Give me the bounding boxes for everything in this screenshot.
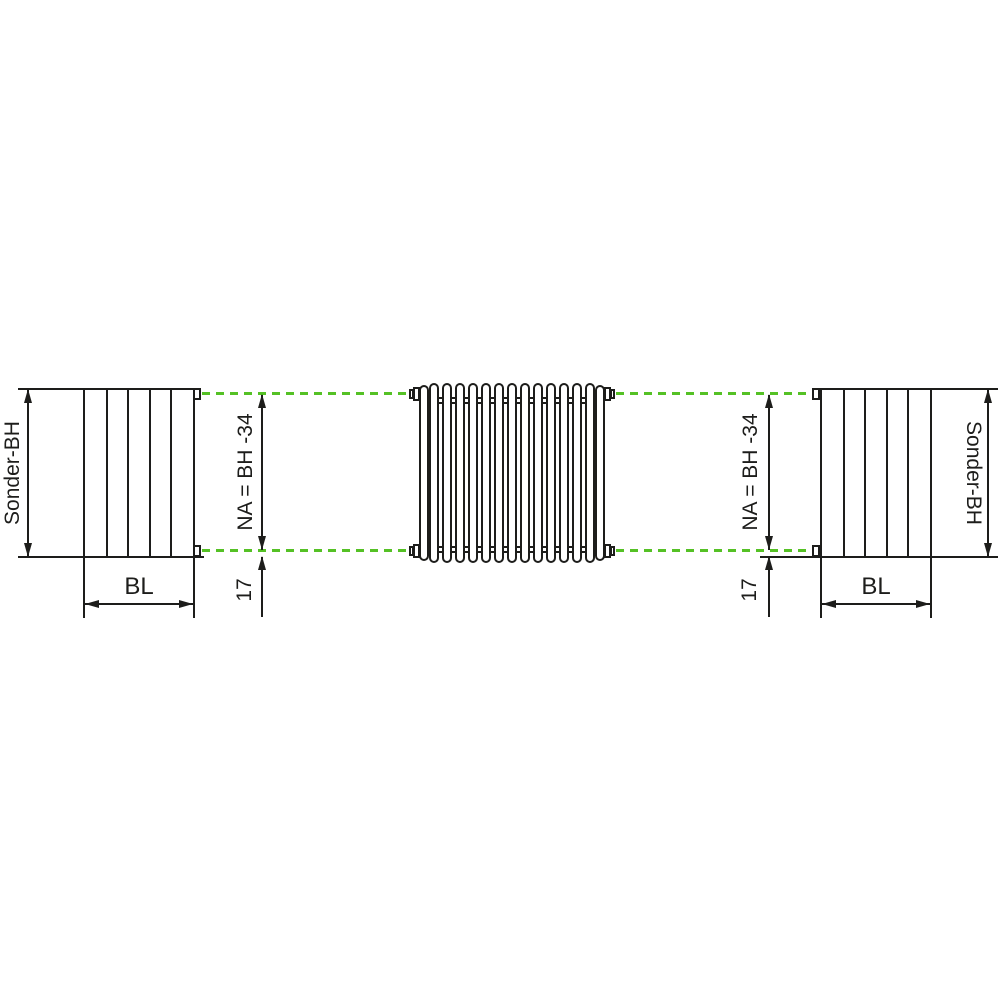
label-bl-left: BL [124,573,153,601]
dimension-arrow [24,389,32,403]
radiator-tube [494,383,504,563]
label-na-left: NA = BH -34 [234,413,258,530]
connection-tab-right-top [812,388,820,400]
pipe-axis-line-bottom-right [616,549,810,552]
dimension-arrow [258,394,266,408]
column-divider-line [843,390,845,556]
connection-nipple-right-top [604,387,611,401]
column-divider-line [149,390,151,556]
dimension-arrow [258,556,266,570]
connection-tab-right-bottom [812,545,820,557]
column-divider-line [886,390,888,556]
label-bl-right: BL [861,573,890,601]
extension-line [820,558,822,618]
column-divider-line [907,390,909,556]
extension-line [193,558,195,618]
pipe-axis-line-top-left [202,392,406,395]
radiator-end-plate-left [419,385,429,561]
label-sonder-bh-right: Sonder-BH [961,421,985,525]
dimension-arrow [85,600,99,608]
radiator-tube [429,383,439,563]
dimension-arrow [179,600,193,608]
radiator-tube [468,383,478,563]
radiator-tube [520,383,530,563]
pipe-axis-line-bottom-left [202,549,406,552]
radiator-tube [572,383,582,563]
extension-line [930,558,932,618]
dimension-arrow [258,536,266,550]
radiator-tube [455,383,465,563]
column-divider-line [864,390,866,556]
dimension-arrow [765,556,773,570]
dimension-arrow [765,394,773,408]
pipe-axis-line-top-right [616,392,810,395]
radiator-dimension-diagram: Sonder-BH Sonder-BH BL BL NA = BH -34 NA… [0,0,1000,1000]
radiator-side-view-left [83,388,195,558]
radiator-tube [507,383,517,563]
dimension-arrow [765,536,773,550]
dimension-arrow [916,600,930,608]
dimension-arrow [984,543,992,557]
radiator-tube-row [429,383,595,563]
label-offset-left: 17 [233,578,257,601]
label-na-right: NA = BH -34 [739,413,763,530]
dimension-line-na-left [261,395,263,550]
radiator-end-plate-right [595,385,605,561]
dimension-line-sonder-bh-left [27,390,29,557]
label-sonder-bh-left: Sonder-BH [1,421,25,525]
radiator-tube [481,383,491,563]
dimension-line-bl-right [822,603,930,605]
label-offset-right: 17 [738,578,762,601]
dimension-line-bl-left [85,603,193,605]
radiator-side-view-right [820,388,932,558]
column-divider-line [170,390,172,556]
extension-line [83,558,85,618]
column-divider-line [127,390,129,556]
dimension-line-na-right [768,395,770,550]
dimension-arrow [24,543,32,557]
radiator-tube [533,383,543,563]
radiator-tube [559,383,569,563]
column-divider-line [106,390,108,556]
dimension-arrow [984,389,992,403]
dimension-arrow [822,600,836,608]
radiator-tube [546,383,556,563]
connection-nipple-right-bottom [604,544,611,558]
dimension-line-sonder-bh-right [987,390,989,557]
radiator-tube [442,383,452,563]
radiator-tube [585,383,595,563]
